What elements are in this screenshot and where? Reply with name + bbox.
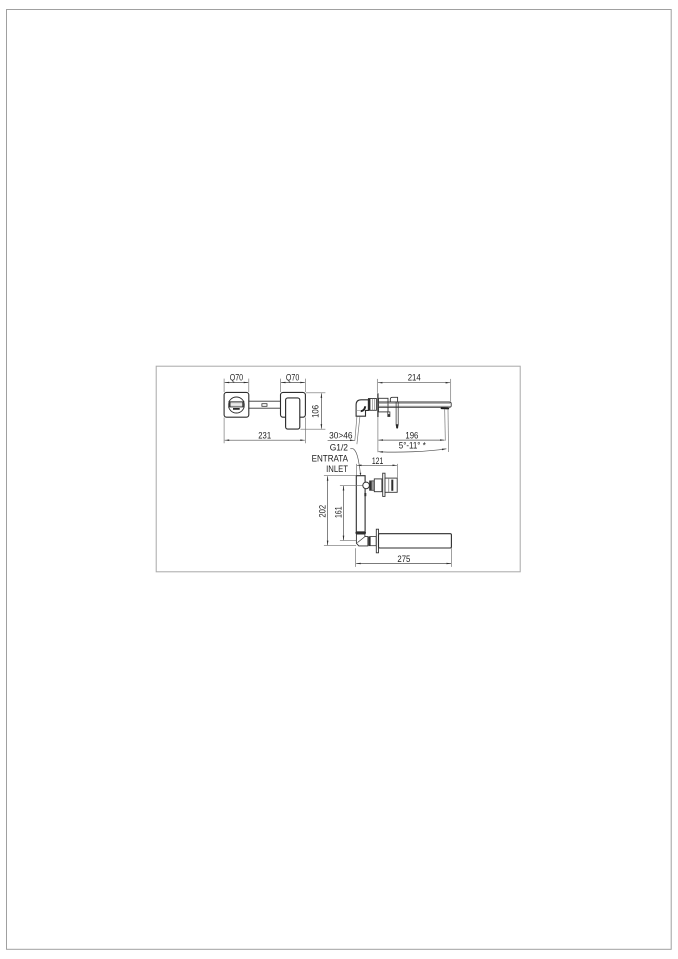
svg-text:5°-11° *: 5°-11° * [399,440,426,450]
svg-text:161: 161 [334,506,344,518]
svg-text:30>46: 30>46 [329,430,352,440]
svg-text:196: 196 [405,431,418,441]
svg-text:202: 202 [318,505,328,518]
svg-text:Q70: Q70 [230,373,243,383]
svg-text:106: 106 [311,405,321,418]
svg-text:214: 214 [408,373,421,383]
svg-text:G1/2: G1/2 [330,443,348,453]
svg-text:275: 275 [397,554,410,564]
svg-text:Q70: Q70 [286,373,299,383]
svg-text:INLET: INLET [326,464,348,474]
svg-text:121: 121 [372,456,384,466]
svg-text:231: 231 [258,431,271,441]
svg-text:ENTRATA: ENTRATA [312,454,348,464]
